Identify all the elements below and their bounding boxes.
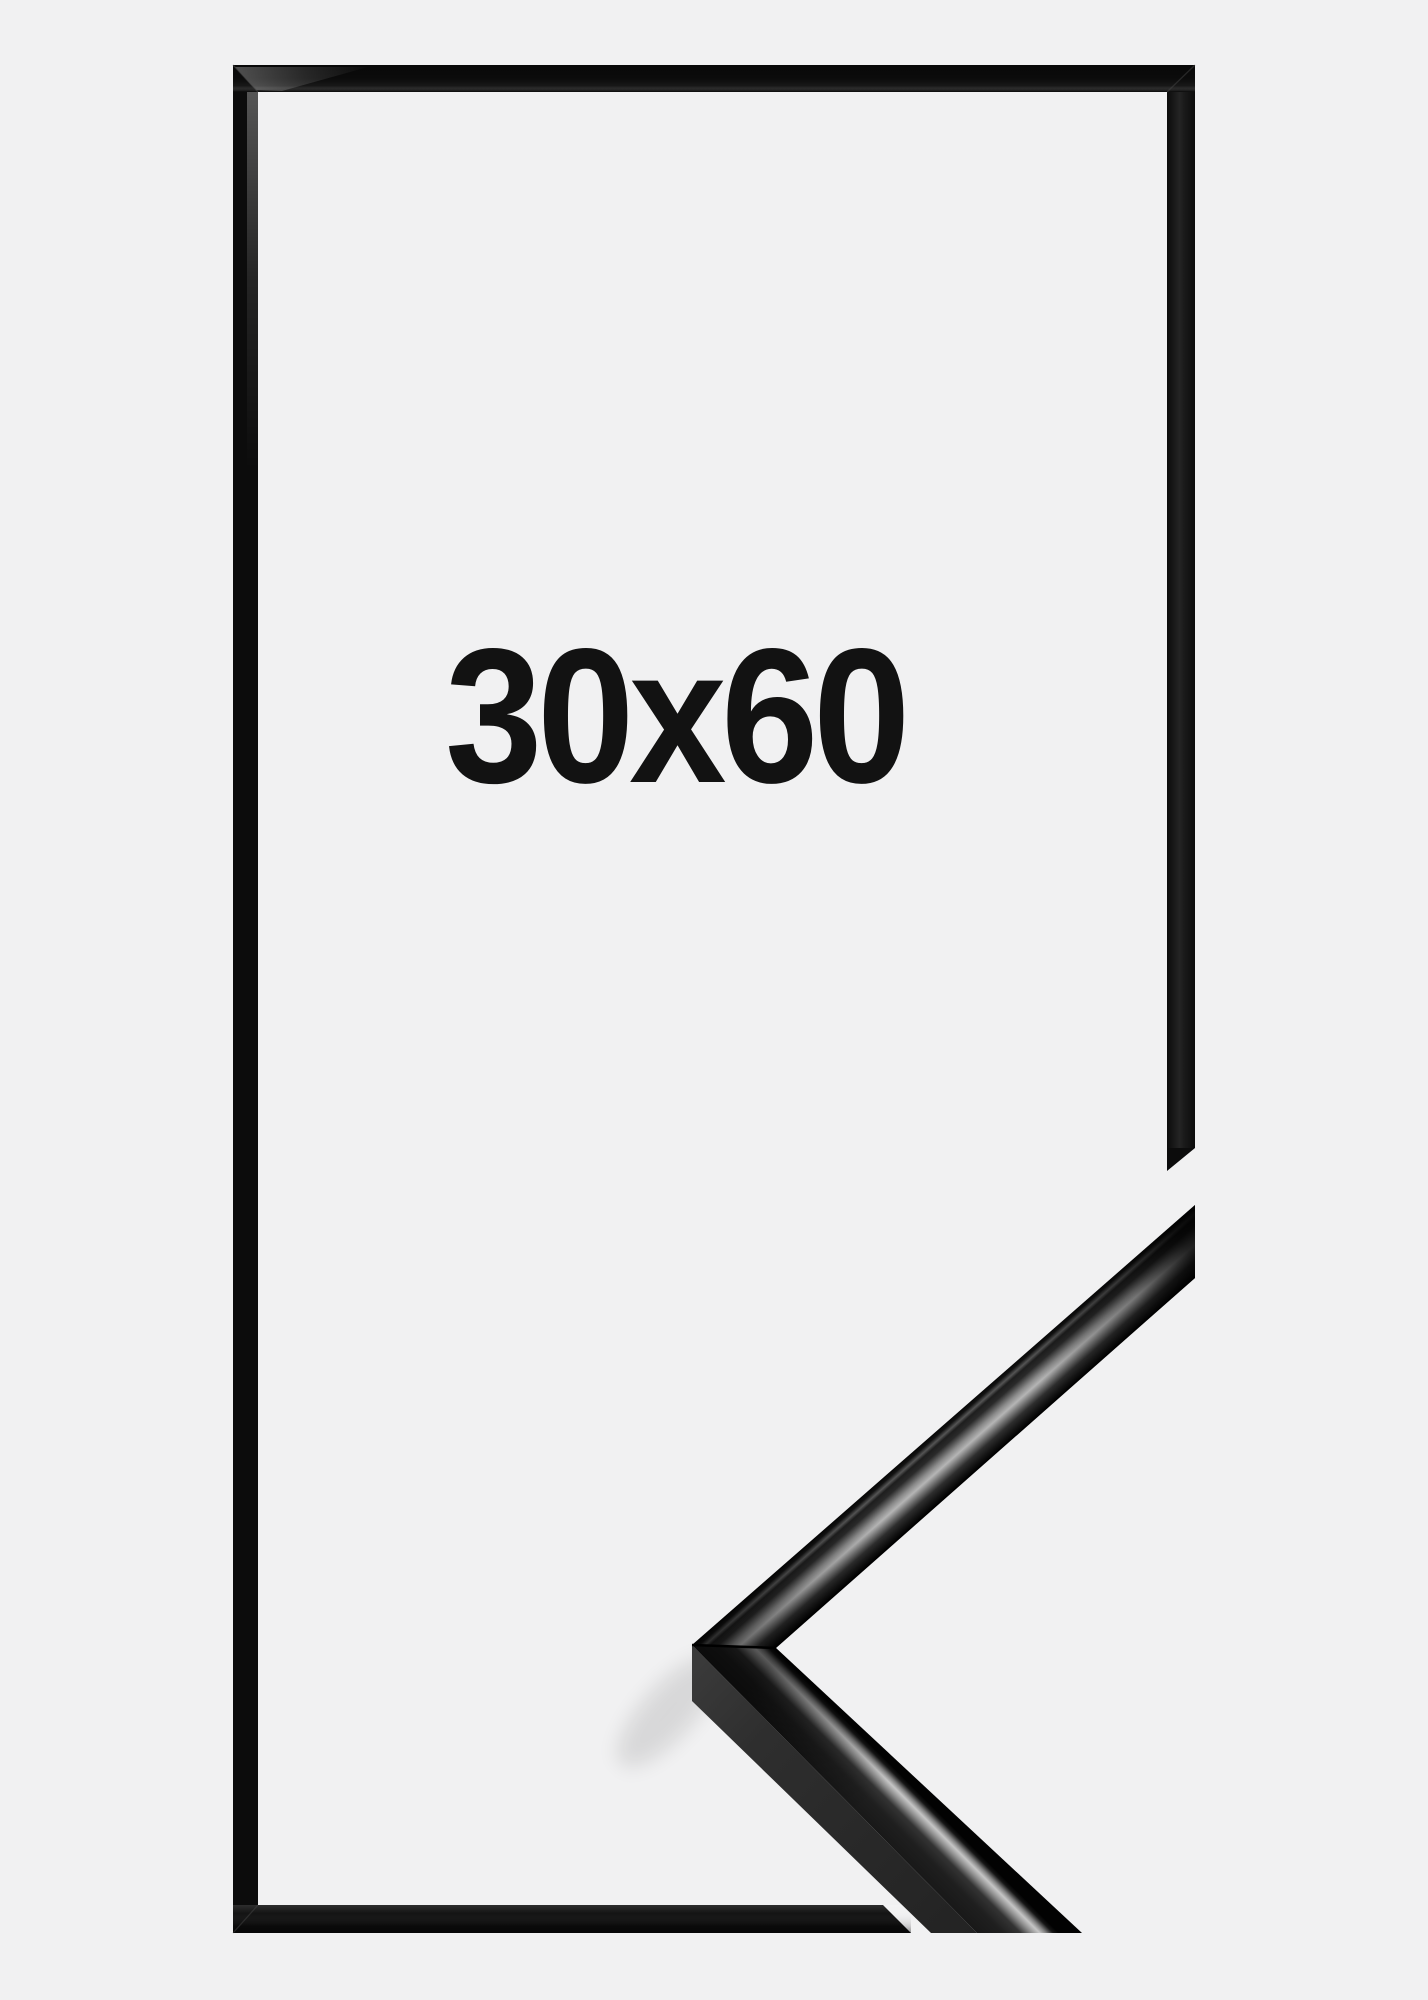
bottom-bar-sheen xyxy=(233,1905,911,1933)
frame-product-photo-canvas: 30x60 xyxy=(0,0,1428,2000)
size-label: 30x60 xyxy=(445,608,905,823)
top-bar-sheen xyxy=(233,65,1195,92)
frame-product-photo: 30x60 xyxy=(0,0,1428,2000)
left-bar-highlight xyxy=(247,92,258,470)
right-bar-sheen xyxy=(1167,92,1195,1148)
